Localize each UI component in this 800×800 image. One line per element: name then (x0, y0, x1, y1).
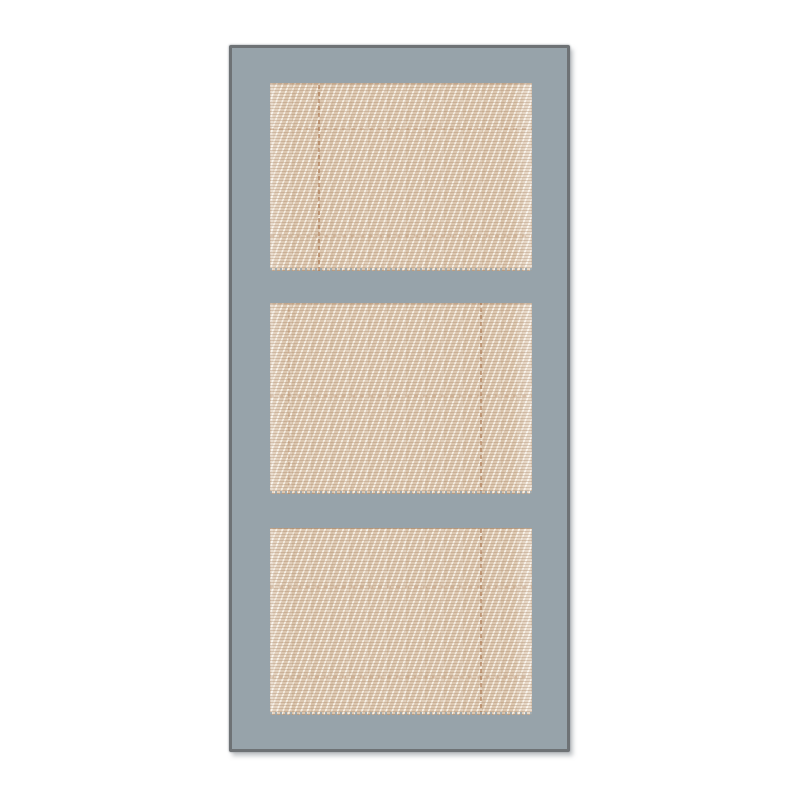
cane-panel-bottom (270, 528, 532, 715)
weave-seam-vertical (318, 83, 320, 271)
cane-panel-middle (270, 303, 532, 494)
weave-seam-horizontal (270, 676, 532, 678)
cane-door-frame (229, 45, 570, 752)
weave-seam-horizontal (270, 128, 532, 130)
weave-seam-vertical (480, 528, 482, 715)
weave-seam-vertical (480, 303, 482, 494)
weave-seam-horizontal (270, 586, 532, 588)
cane-panel-top (270, 83, 532, 271)
scene-background (0, 0, 800, 800)
weave-seam-horizontal (270, 395, 532, 397)
weave-seam-horizontal (270, 235, 532, 237)
weave-seam-vertical (288, 303, 290, 494)
